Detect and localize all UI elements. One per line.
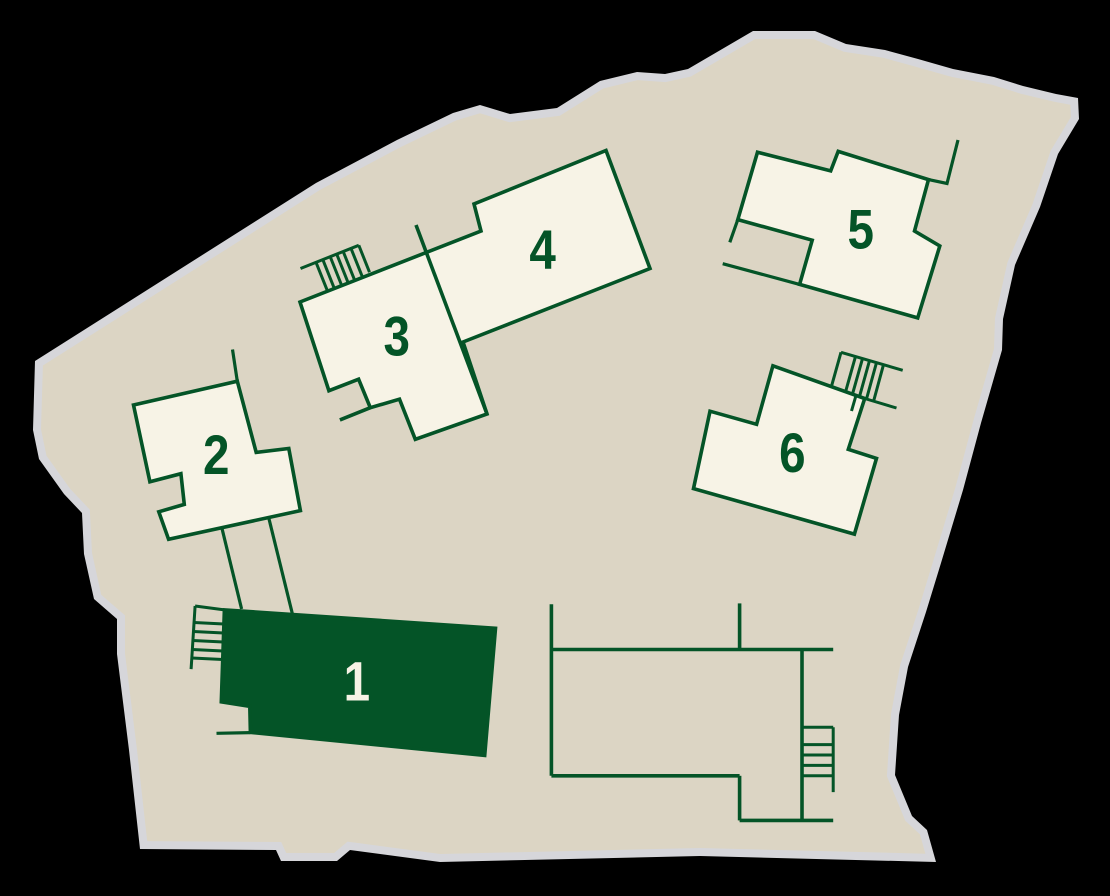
svg-text:5: 5 (848, 199, 874, 261)
svg-text:6: 6 (779, 422, 805, 484)
svg-text:1: 1 (344, 651, 370, 713)
svg-text:2: 2 (203, 425, 229, 487)
svg-text:3: 3 (384, 306, 410, 368)
svg-text:4: 4 (529, 220, 556, 282)
